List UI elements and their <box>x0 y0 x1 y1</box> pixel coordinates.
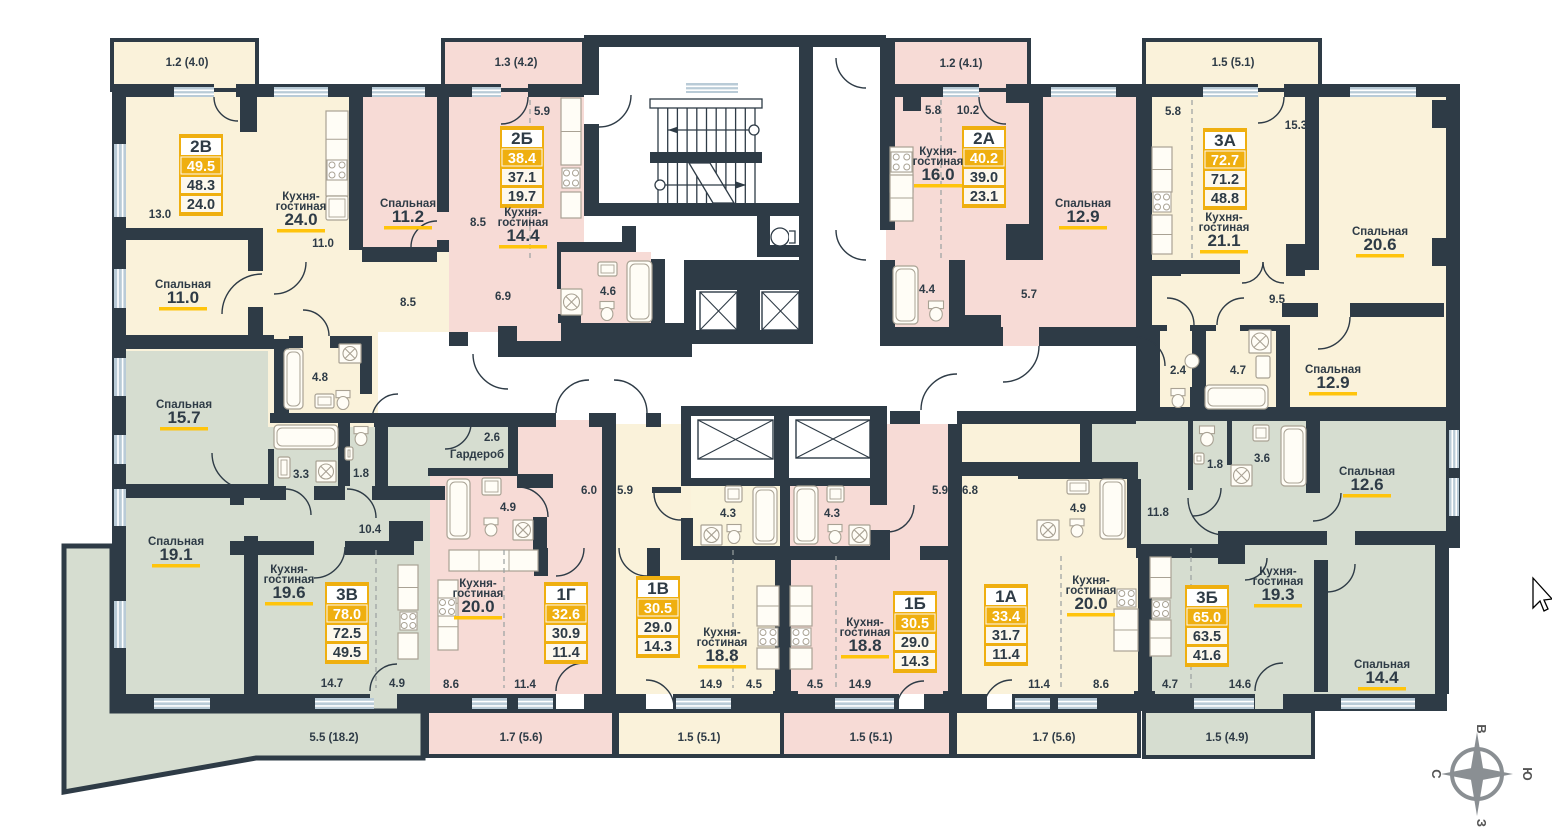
svg-text:32.6: 32.6 <box>552 607 580 623</box>
svg-text:1Г: 1Г <box>556 585 575 604</box>
svg-text:49.5: 49.5 <box>333 645 361 661</box>
svg-text:11.4: 11.4 <box>1028 679 1050 691</box>
svg-text:72.5: 72.5 <box>333 626 361 642</box>
svg-text:49.5: 49.5 <box>187 159 215 175</box>
svg-text:14.3: 14.3 <box>901 654 929 670</box>
svg-text:3.3: 3.3 <box>293 469 309 481</box>
svg-text:12.9: 12.9 <box>1316 373 1349 392</box>
svg-text:39.0: 39.0 <box>970 170 998 186</box>
svg-text:38.4: 38.4 <box>508 151 536 167</box>
svg-text:9.5: 9.5 <box>1269 294 1286 306</box>
svg-text:1.7 (5.6): 1.7 (5.6) <box>1033 732 1076 744</box>
svg-text:14.4: 14.4 <box>506 226 540 245</box>
svg-text:3А: 3А <box>1214 131 1236 150</box>
svg-text:З: З <box>1474 819 1489 827</box>
svg-text:4.8: 4.8 <box>312 372 329 384</box>
svg-text:1.7 (5.6): 1.7 (5.6) <box>500 732 543 744</box>
svg-text:15.3: 15.3 <box>1285 120 1307 132</box>
svg-text:Ю: Ю <box>1520 767 1535 780</box>
svg-text:71.2: 71.2 <box>1211 172 1239 188</box>
svg-text:63.5: 63.5 <box>1193 629 1221 645</box>
svg-text:20.6: 20.6 <box>1363 235 1396 254</box>
svg-text:18.8: 18.8 <box>848 636 881 655</box>
svg-text:Гардероб: Гардероб <box>450 449 504 461</box>
svg-text:65.0: 65.0 <box>1193 610 1221 626</box>
svg-text:1.5 (5.1): 1.5 (5.1) <box>678 732 721 744</box>
svg-text:41.6: 41.6 <box>1193 648 1221 664</box>
svg-text:1В: 1В <box>647 579 669 598</box>
svg-text:14.9: 14.9 <box>700 679 722 691</box>
svg-text:12.9: 12.9 <box>1066 207 1099 226</box>
svg-text:4.6: 4.6 <box>600 286 616 298</box>
svg-text:14.4: 14.4 <box>1365 668 1399 687</box>
svg-text:20.0: 20.0 <box>1074 594 1107 613</box>
svg-text:30.5: 30.5 <box>901 616 929 632</box>
svg-text:19.3: 19.3 <box>1261 585 1294 604</box>
svg-text:8.6: 8.6 <box>443 679 459 691</box>
svg-text:10.4: 10.4 <box>359 524 382 536</box>
svg-text:11.2: 11.2 <box>392 207 424 226</box>
svg-text:5.7: 5.7 <box>1021 289 1037 301</box>
svg-text:14.6: 14.6 <box>1229 679 1251 691</box>
svg-text:2.4: 2.4 <box>1170 365 1187 377</box>
svg-text:29.0: 29.0 <box>644 620 672 636</box>
svg-text:10.2: 10.2 <box>957 105 979 117</box>
svg-text:5.5 (18.2): 5.5 (18.2) <box>309 732 358 744</box>
svg-text:11.0: 11.0 <box>312 238 334 250</box>
svg-text:15.7: 15.7 <box>167 408 200 427</box>
svg-text:14.7: 14.7 <box>321 678 343 690</box>
svg-text:20.0: 20.0 <box>461 597 494 616</box>
svg-text:С: С <box>1429 769 1444 779</box>
svg-text:4.7: 4.7 <box>1162 679 1178 691</box>
svg-text:30.5: 30.5 <box>644 601 672 617</box>
svg-text:1.2 (4.1): 1.2 (4.1) <box>940 58 983 70</box>
svg-text:19.6: 19.6 <box>272 583 305 602</box>
svg-text:4.9: 4.9 <box>500 502 516 514</box>
svg-text:24.0: 24.0 <box>284 210 317 229</box>
svg-text:4.9: 4.9 <box>1070 503 1086 515</box>
svg-text:30.9: 30.9 <box>552 626 580 642</box>
svg-text:6.9: 6.9 <box>495 291 511 303</box>
svg-text:1.3 (4.2): 1.3 (4.2) <box>495 57 538 69</box>
svg-text:1А: 1А <box>995 587 1017 606</box>
svg-text:4.3: 4.3 <box>720 508 736 520</box>
svg-text:11.4: 11.4 <box>514 679 536 691</box>
svg-text:78.0: 78.0 <box>333 607 361 623</box>
svg-text:В: В <box>1474 724 1489 733</box>
svg-text:14.9: 14.9 <box>849 679 871 691</box>
svg-text:19.1: 19.1 <box>159 545 192 564</box>
svg-text:29.0: 29.0 <box>901 635 929 651</box>
svg-text:16.0: 16.0 <box>921 165 954 184</box>
svg-text:37.1: 37.1 <box>508 170 536 186</box>
svg-text:48.3: 48.3 <box>187 178 215 194</box>
svg-text:21.1: 21.1 <box>1207 231 1240 250</box>
svg-text:8.5: 8.5 <box>400 297 417 309</box>
svg-text:2Б: 2Б <box>511 129 533 148</box>
svg-text:3В: 3В <box>336 585 358 604</box>
svg-text:4.3: 4.3 <box>824 508 840 520</box>
svg-text:1.8: 1.8 <box>353 468 370 480</box>
svg-text:2.6: 2.6 <box>484 432 500 444</box>
svg-text:5.9: 5.9 <box>534 106 550 118</box>
svg-text:19.7: 19.7 <box>508 189 536 205</box>
svg-text:23.1: 23.1 <box>970 189 998 205</box>
svg-text:1.8: 1.8 <box>1207 459 1224 471</box>
svg-text:11.4: 11.4 <box>992 647 1019 663</box>
svg-text:1.5 (5.1): 1.5 (5.1) <box>850 732 893 744</box>
svg-text:4.5: 4.5 <box>746 679 763 691</box>
svg-text:4.9: 4.9 <box>389 678 405 690</box>
svg-text:2В: 2В <box>190 137 212 156</box>
svg-text:5.9: 5.9 <box>617 485 633 497</box>
svg-text:1.5 (5.1): 1.5 (5.1) <box>1212 57 1255 69</box>
svg-text:8.6: 8.6 <box>1093 679 1109 691</box>
svg-text:18.8: 18.8 <box>705 646 738 665</box>
svg-text:48.8: 48.8 <box>1211 191 1239 207</box>
svg-text:3.6: 3.6 <box>1254 453 1270 465</box>
svg-text:5.8: 5.8 <box>1165 106 1182 118</box>
svg-text:31.7: 31.7 <box>992 628 1020 644</box>
svg-text:4.5: 4.5 <box>807 679 824 691</box>
svg-text:8.5: 8.5 <box>470 217 487 229</box>
svg-text:1.5 (4.9): 1.5 (4.9) <box>1206 732 1249 744</box>
svg-text:6.8: 6.8 <box>962 485 979 497</box>
svg-text:1.2 (4.0): 1.2 (4.0) <box>166 57 209 69</box>
svg-text:5.9: 5.9 <box>932 485 948 497</box>
svg-text:5.8: 5.8 <box>925 105 942 117</box>
svg-text:3Б: 3Б <box>1196 588 1218 607</box>
svg-text:11.4: 11.4 <box>552 645 579 661</box>
svg-text:13.0: 13.0 <box>149 209 171 221</box>
svg-text:11.0: 11.0 <box>167 288 199 307</box>
svg-text:1Б: 1Б <box>904 594 926 613</box>
svg-text:4.7: 4.7 <box>1230 365 1246 377</box>
svg-text:2А: 2А <box>973 129 995 148</box>
svg-text:24.0: 24.0 <box>187 197 215 213</box>
svg-text:12.6: 12.6 <box>1350 475 1383 494</box>
svg-text:40.2: 40.2 <box>970 151 998 167</box>
svg-text:6.0: 6.0 <box>581 485 597 497</box>
svg-text:33.4: 33.4 <box>992 609 1020 625</box>
svg-text:14.3: 14.3 <box>644 639 672 655</box>
svg-text:72.7: 72.7 <box>1211 153 1239 169</box>
svg-text:4.4: 4.4 <box>919 284 936 296</box>
svg-text:11.8: 11.8 <box>1147 507 1169 519</box>
